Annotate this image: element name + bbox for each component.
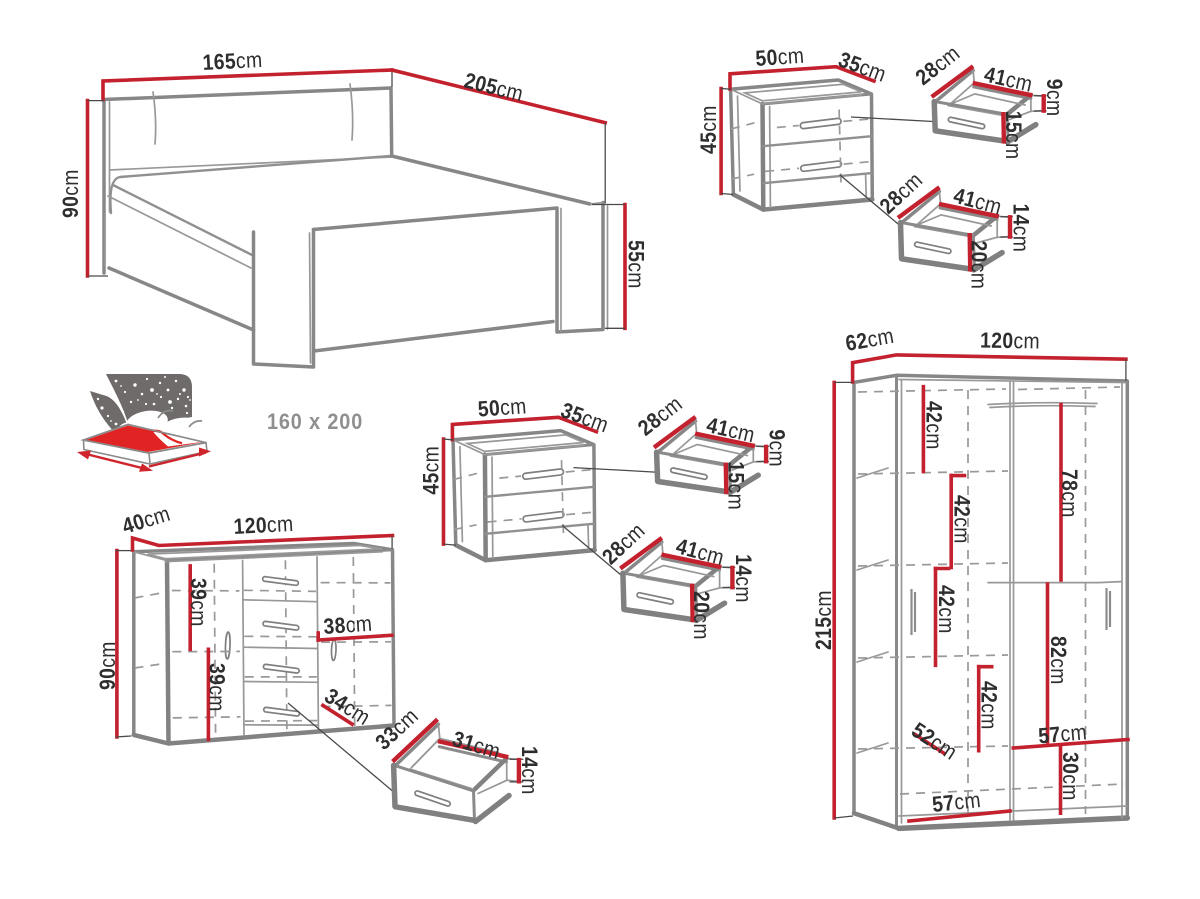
svg-text:215cm: 215cm [812, 590, 836, 650]
svg-text:57cm: 57cm [931, 788, 982, 817]
svg-text:30cm: 30cm [1058, 752, 1082, 801]
svg-text:165cm: 165cm [202, 48, 263, 76]
svg-text:42cm: 42cm [976, 681, 1000, 730]
svg-text:39cm: 39cm [204, 663, 228, 712]
svg-text:15cm: 15cm [1001, 111, 1025, 160]
svg-text:39cm: 39cm [186, 578, 210, 627]
svg-text:14cm: 14cm [1008, 204, 1032, 253]
svg-text:120cm: 120cm [980, 328, 1040, 353]
svg-text:42cm: 42cm [949, 495, 973, 544]
svg-text:20cm: 20cm [689, 591, 713, 640]
svg-text:45cm: 45cm [697, 105, 721, 154]
svg-text:38cm: 38cm [323, 612, 373, 640]
svg-text:50cm: 50cm [755, 44, 805, 72]
svg-text:55cm: 55cm [623, 240, 647, 289]
svg-text:82cm: 82cm [1046, 636, 1070, 685]
svg-text:15cm: 15cm [723, 461, 747, 510]
svg-text:9cm: 9cm [1042, 79, 1066, 117]
svg-text:42cm: 42cm [921, 401, 945, 450]
svg-text:90cm: 90cm [59, 169, 83, 218]
svg-text:50cm: 50cm [477, 394, 527, 422]
svg-text:160 x 200: 160 x 200 [267, 410, 363, 434]
svg-text:78cm: 78cm [1057, 469, 1081, 518]
svg-text:90cm: 90cm [96, 641, 120, 690]
svg-text:14cm: 14cm [517, 746, 541, 795]
svg-text:9cm: 9cm [764, 429, 788, 467]
svg-text:42cm: 42cm [934, 585, 958, 634]
svg-text:57cm: 57cm [1037, 720, 1088, 749]
svg-text:20cm: 20cm [966, 241, 990, 290]
svg-text:14cm: 14cm [731, 554, 755, 603]
svg-text:45cm: 45cm [419, 446, 443, 495]
svg-text:120cm: 120cm [233, 512, 294, 540]
